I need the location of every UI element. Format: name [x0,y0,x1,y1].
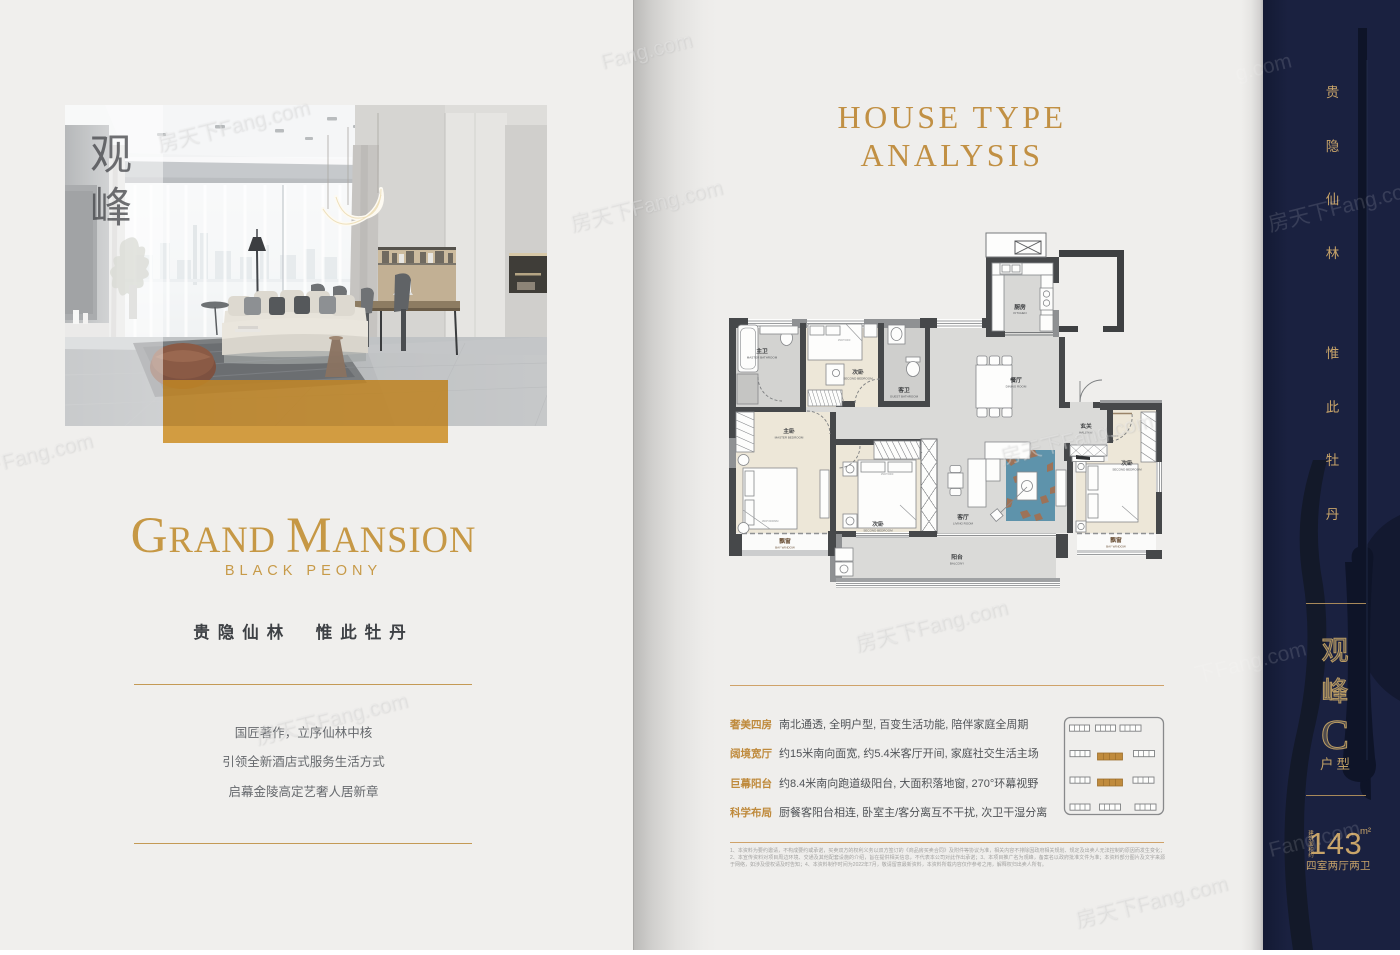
svg-text:MASTER BEDROOM: MASTER BEDROOM [775,436,804,440]
svg-text:1500*2000: 1500*2000 [881,472,894,476]
svg-text:KITCHEN: KITCHEN [1013,311,1026,315]
svg-text:SECOND BEDROOM: SECOND BEDROOM [843,377,873,381]
svg-text:BAY WINDOW: BAY WINDOW [1106,545,1126,549]
svg-text:1800*2000MM: 1800*2000MM [762,519,779,523]
svg-text:SECOND BEDROOM: SECOND BEDROOM [1112,468,1142,472]
svg-text:主卫: 主卫 [756,347,768,355]
svg-text:客卫: 客卫 [897,386,910,394]
svg-text:厨房: 厨房 [1014,303,1026,311]
svg-text:主卧: 主卧 [783,427,795,435]
svg-text:次卧: 次卧 [1121,459,1133,467]
svg-text:餐厅: 餐厅 [1009,376,1022,384]
svg-text:客厅: 客厅 [956,513,969,521]
svg-text:GUEST BATHROOM: GUEST BATHROOM [890,395,919,399]
svg-text:1500*2000: 1500*2000 [838,338,851,342]
svg-text:LIVING ROOM: LIVING ROOM [953,522,974,526]
svg-text:SECOND BEDROOM: SECOND BEDROOM [863,529,893,533]
svg-text:DINING ROOM: DINING ROOM [1006,385,1027,389]
svg-text:飘窗: 飘窗 [779,537,791,545]
svg-text:次卧: 次卧 [872,520,884,528]
svg-text:飘窗: 飘窗 [1110,536,1122,544]
svg-text:次卧: 次卧 [852,368,864,376]
svg-text:BAY WINDOW: BAY WINDOW [775,546,795,550]
svg-text:MASTER BATHROOM: MASTER BATHROOM [747,356,778,360]
svg-text:BALCONY: BALCONY [950,562,964,566]
svg-text:阳台: 阳台 [951,553,963,561]
